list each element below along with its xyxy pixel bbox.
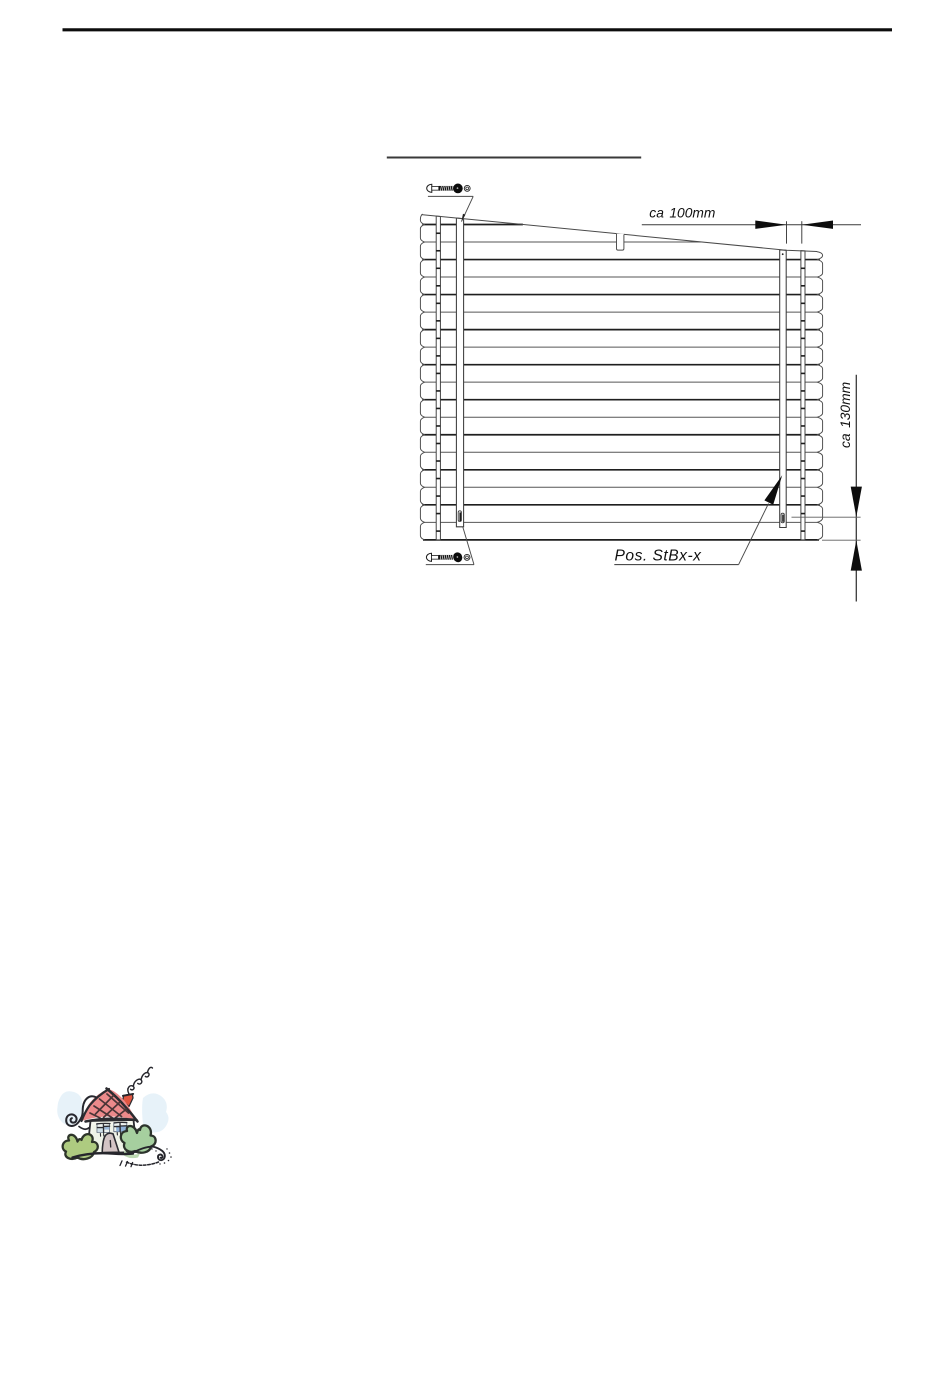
svg-text:Pos. StBx-x: Pos. StBx-x (615, 547, 703, 564)
svg-text:ca130mm: ca130mm (838, 382, 853, 448)
svg-text:ca100mm: ca100mm (649, 206, 715, 221)
